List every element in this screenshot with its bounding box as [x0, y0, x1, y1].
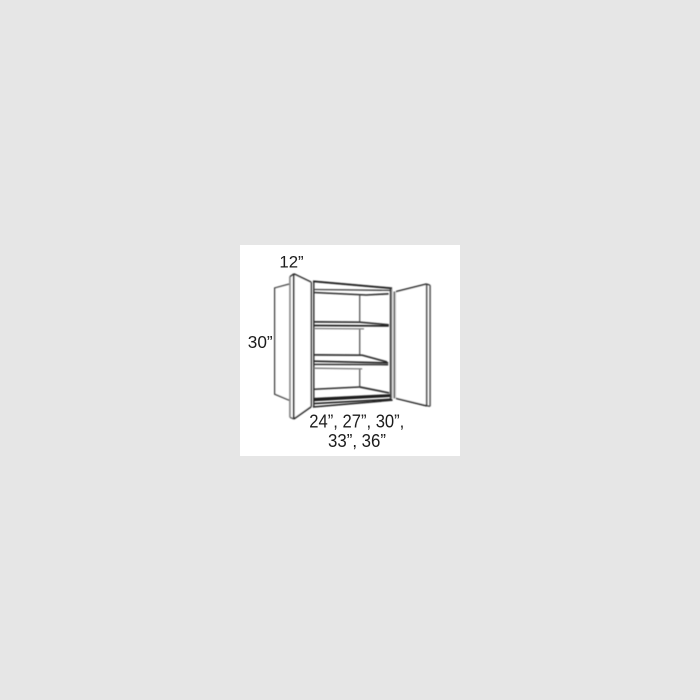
svg-text:33”, 36”: 33”, 36” — [328, 431, 386, 451]
svg-text:30”: 30” — [248, 332, 273, 352]
svg-text:12”: 12” — [279, 252, 303, 271]
svg-text:24”, 27”, 30”,: 24”, 27”, 30”, — [309, 411, 404, 431]
